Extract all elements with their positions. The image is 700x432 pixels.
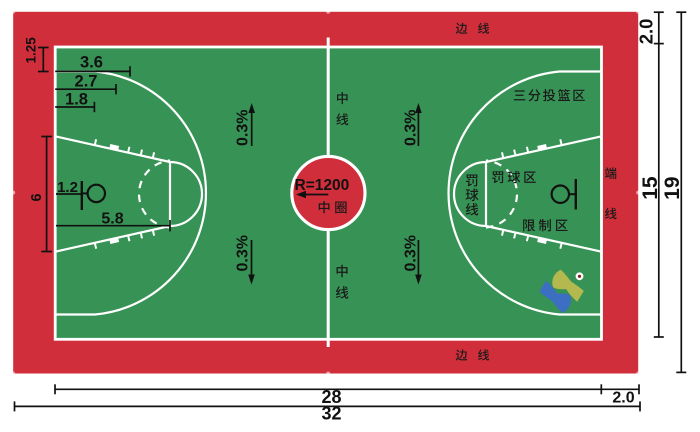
svg-text:0.3%: 0.3% <box>403 110 420 146</box>
svg-text:5.8: 5.8 <box>101 211 123 228</box>
svg-text:0.3%: 0.3% <box>403 235 420 271</box>
svg-text:19: 19 <box>661 176 684 199</box>
svg-text:3.6: 3.6 <box>80 54 103 72</box>
svg-text:2.0: 2.0 <box>612 390 634 407</box>
svg-text:R=1200: R=1200 <box>295 177 350 194</box>
svg-text:32: 32 <box>321 404 341 424</box>
svg-text:15: 15 <box>639 176 662 200</box>
svg-text:1.8: 1.8 <box>65 90 88 108</box>
svg-text:1.25: 1.25 <box>24 37 39 64</box>
svg-text:2.7: 2.7 <box>75 73 98 91</box>
svg-text:6: 6 <box>29 193 45 201</box>
svg-text:0.3%: 0.3% <box>235 235 252 271</box>
svg-text:0.3%: 0.3% <box>235 110 252 146</box>
svg-text:2.0: 2.0 <box>635 19 656 45</box>
svg-text:1.2: 1.2 <box>57 179 78 196</box>
